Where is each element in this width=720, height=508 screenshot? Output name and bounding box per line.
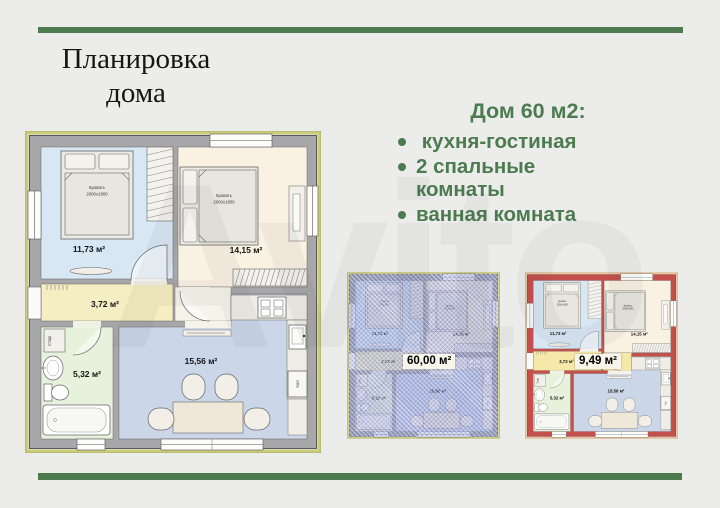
total-area-label: 60,00 м² bbox=[403, 354, 455, 369]
bed-label: Кровать bbox=[216, 193, 233, 198]
bedroom1-dresser bbox=[548, 343, 570, 347]
area-label-bedroom1: 11,73 м² bbox=[73, 244, 105, 254]
stove bbox=[645, 358, 659, 369]
stove bbox=[258, 297, 286, 318]
area-label-hallway: 3,72 м² bbox=[91, 299, 119, 309]
summary-item: кухня-гостиная bbox=[398, 130, 664, 153]
window bbox=[77, 439, 105, 450]
bedroom1-wardrobe bbox=[588, 281, 601, 319]
window bbox=[161, 439, 263, 450]
window bbox=[28, 191, 41, 239]
kitchen-sink bbox=[289, 325, 306, 349]
summary-item: 2 спальные комнаты bbox=[398, 155, 664, 201]
summary-item-label: ванная комната bbox=[416, 203, 602, 226]
entrance-opening bbox=[527, 353, 534, 370]
window bbox=[552, 431, 566, 437]
bedroom2-desk bbox=[289, 186, 305, 241]
kitchen-console bbox=[183, 330, 231, 336]
door-opening bbox=[180, 287, 210, 295]
passage-opening bbox=[185, 321, 231, 328]
window bbox=[527, 303, 534, 328]
top-divider bbox=[38, 27, 683, 33]
walls-area-label: 9,49 м² bbox=[575, 354, 621, 369]
page-title: Планировка дома bbox=[34, 42, 238, 110]
area-label-bedroom2: 14,15 м² bbox=[230, 245, 263, 255]
summary-item-label: кухня-гостиная bbox=[416, 130, 602, 153]
area-label-bedroom2: 14,15 м² bbox=[631, 331, 648, 336]
summary-list: кухня-гостиная 2 спальные комнаты ванная… bbox=[392, 130, 664, 226]
bedroom2-bed: Кровать 2000х1800 bbox=[180, 167, 258, 245]
window bbox=[307, 186, 318, 236]
door-opening bbox=[550, 370, 564, 374]
bedroom2-wardrobe bbox=[233, 269, 307, 286]
bed-label: 2000х1800 bbox=[557, 305, 569, 307]
bedroom1-dresser bbox=[70, 268, 112, 275]
bedroom2-desk bbox=[661, 301, 669, 329]
area-label-kitchen: 15,56 м² bbox=[185, 356, 218, 366]
kitchen-cabinet bbox=[288, 399, 307, 435]
page-background: { "header": { "title_line1": "Планировка… bbox=[0, 0, 720, 508]
toilet bbox=[44, 384, 69, 401]
bedroom1-bed: Кровать 2000х1800 bbox=[544, 283, 581, 328]
window bbox=[671, 301, 677, 327]
window bbox=[210, 134, 272, 147]
summary-item: ванная комната bbox=[398, 203, 664, 226]
page-title-line1: Планировка bbox=[34, 42, 238, 76]
washing-machine: Стир bbox=[535, 375, 546, 387]
bedroom1-wardrobe bbox=[147, 147, 173, 221]
fridge-label: Хол bbox=[295, 380, 300, 388]
bed-label: Кровать bbox=[558, 301, 567, 303]
toilet bbox=[535, 403, 548, 412]
fridge: Хол bbox=[288, 371, 307, 397]
bed-label: Кровать bbox=[624, 305, 633, 307]
area-label-kitchen: 15,56 м² bbox=[608, 389, 625, 394]
fridge: Хол bbox=[661, 396, 671, 409]
area-label-bathroom: 5,32 м² bbox=[550, 395, 565, 400]
area-label-bedroom1: 11,73 м² bbox=[550, 331, 567, 336]
washer-label: Стир bbox=[47, 335, 52, 345]
floor-plan-total-area-variant: Кровать 2000х1800 Кровать 2000х1800 Стир bbox=[347, 272, 500, 439]
floor-plan-main: Кровать 2000х1800 Кровать 2000х1800 Стир bbox=[25, 131, 321, 453]
washing-machine: Стир bbox=[44, 329, 65, 352]
summary-item-label: 2 спальные комнаты bbox=[416, 155, 602, 201]
kitchen-cabinet bbox=[661, 411, 671, 430]
window bbox=[621, 274, 653, 281]
bottom-divider bbox=[38, 473, 682, 480]
kitchen-sink bbox=[661, 373, 670, 385]
summary-panel: Дом 60 м2: кухня-гостиная 2 спальные ком… bbox=[392, 99, 664, 228]
area-label-bathroom: 5,32 м² bbox=[73, 369, 101, 379]
bullet-dot-icon bbox=[398, 138, 406, 146]
bed-label: Кровать bbox=[89, 185, 106, 190]
bed-label: 2000х1800 bbox=[622, 309, 634, 311]
bedroom2-wardrobe bbox=[633, 344, 671, 353]
bedroom1-bed: Кровать 2000х1800 bbox=[61, 151, 133, 239]
bedroom2-bed: Кровать 2000х1800 bbox=[605, 291, 645, 331]
page-title-line2: дома bbox=[34, 76, 238, 110]
summary-heading: Дом 60 м2: bbox=[392, 99, 664, 124]
bathtub bbox=[43, 405, 110, 435]
floor-plan-walls-variant: Кровать 2000х1800 Кровать 2000х1800 Стир bbox=[525, 272, 678, 439]
area-label-hallway: 3,72 м² bbox=[559, 359, 574, 364]
kitchen-console bbox=[607, 375, 632, 378]
entrance-opening bbox=[28, 287, 41, 319]
washer-label: Стир bbox=[537, 378, 539, 384]
passage-opening bbox=[608, 370, 632, 374]
door-opening bbox=[73, 321, 101, 328]
bullet-dot-icon bbox=[398, 163, 406, 171]
window bbox=[595, 431, 648, 437]
bathtub bbox=[534, 414, 569, 430]
bed-label: 2000х1800 bbox=[86, 192, 108, 197]
floor-plan-drawing: Кровать 2000х1800 Кровать 2000х1800 Стир bbox=[25, 131, 321, 453]
bullet-dot-icon bbox=[398, 211, 406, 219]
bed-label: 2000х1800 bbox=[213, 200, 235, 205]
